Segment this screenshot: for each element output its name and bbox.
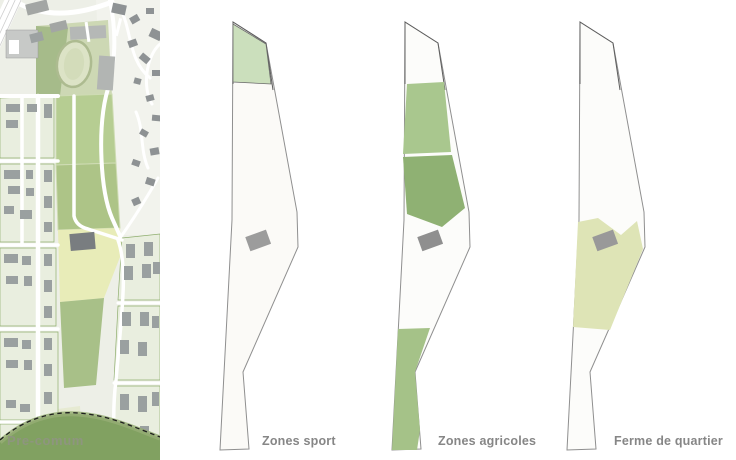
label-ferme-de-quartier: Ferme de quartier (614, 434, 723, 448)
map-sports-field-1 (56, 94, 116, 165)
zone-sport-area (233, 24, 271, 84)
diagram-ferme-de-quartier (542, 0, 692, 460)
site-map-image (0, 0, 160, 460)
zone-agricole-upper (403, 82, 451, 154)
diagram-zones-sport (195, 0, 345, 460)
site-map: Pre-comum (0, 0, 160, 460)
page: Pre-comum Zones sport Zones agricoles Fe… (0, 0, 736, 460)
label-zones-agricoles: Zones agricoles (438, 434, 536, 448)
map-central-building (69, 232, 95, 251)
diagram-zones-agricoles (367, 0, 517, 460)
label-zones-sport: Zones sport (262, 434, 336, 448)
map-sports-field-2 (56, 163, 120, 230)
map-area-label: Pre-comum (7, 433, 84, 448)
